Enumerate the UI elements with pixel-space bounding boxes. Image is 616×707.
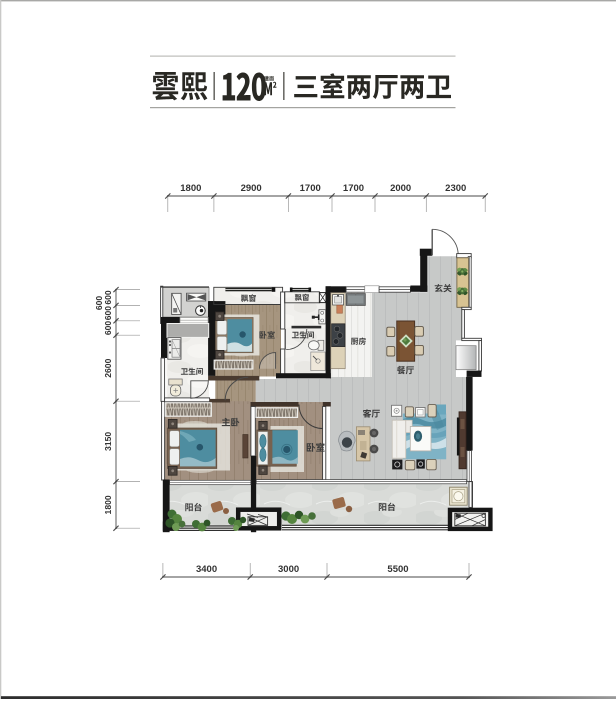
svg-text:5500: 5500 (387, 564, 408, 575)
svg-text:2600: 2600 (103, 358, 113, 377)
svg-text:600: 600 (103, 290, 113, 305)
svg-text:3400: 3400 (196, 564, 217, 575)
svg-text:1800: 1800 (180, 183, 201, 194)
svg-text:600: 600 (103, 306, 113, 321)
svg-text:2300: 2300 (445, 183, 466, 194)
svg-text:1800: 1800 (103, 495, 113, 514)
svg-text:1700: 1700 (300, 183, 321, 194)
svg-text:2900: 2900 (241, 183, 262, 194)
svg-text:2000: 2000 (390, 183, 411, 194)
svg-text:1700: 1700 (343, 183, 364, 194)
svg-text:3000: 3000 (278, 564, 299, 575)
svg-text:3150: 3150 (103, 432, 113, 451)
svg-text:600: 600 (103, 321, 113, 336)
svg-text:600: 600 (94, 296, 104, 311)
